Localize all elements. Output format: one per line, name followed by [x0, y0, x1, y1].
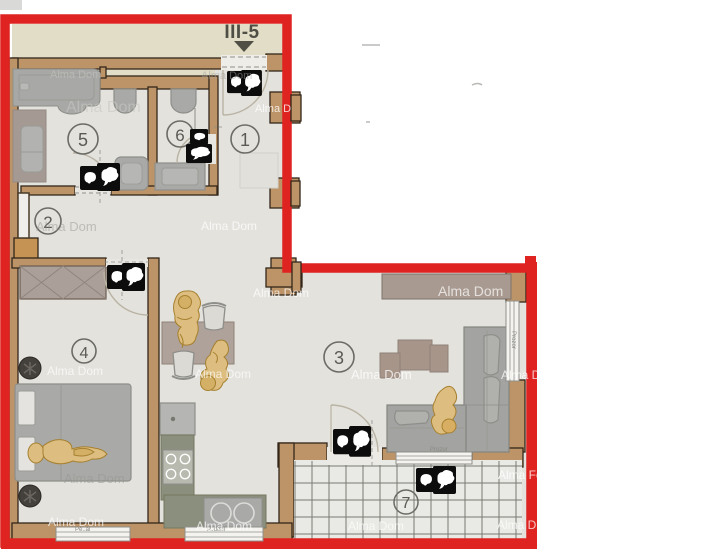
- svg-text:5: 5: [78, 130, 88, 150]
- svg-text:Alma Dom: Alma Dom: [196, 519, 252, 533]
- svg-text:Alma Dom: Alma Dom: [66, 99, 141, 116]
- svg-text:Prozor: Prozor: [510, 331, 516, 349]
- svg-text:Alma Dom: Alma Dom: [36, 219, 97, 234]
- svg-text:Alma Dom: Alma Dom: [47, 364, 103, 378]
- svg-text:6: 6: [175, 126, 184, 145]
- svg-text:Alma Dom: Alma Dom: [48, 515, 104, 529]
- svg-text:Alma Dom: Alma Dom: [195, 367, 251, 381]
- svg-text:Alma D: Alma D: [497, 518, 537, 532]
- svg-text:Alma Dom: Alma Dom: [438, 283, 503, 299]
- svg-text:Alma Fo: Alma Fo: [498, 468, 543, 482]
- svg-text:III-5: III-5: [224, 22, 259, 43]
- svg-text:Alma Dom: Alma Dom: [351, 367, 412, 382]
- svg-text:4: 4: [80, 345, 89, 362]
- svg-text:Alma Dom: Alma Dom: [253, 286, 309, 300]
- svg-text:Alma D: Alma D: [501, 368, 541, 382]
- svg-text:Alma D: Alma D: [255, 103, 291, 115]
- svg-text:Prozor: Prozor: [430, 447, 448, 453]
- svg-text:Alma Dom: Alma Dom: [201, 70, 252, 82]
- svg-text:Alma Dom: Alma Dom: [348, 519, 404, 533]
- svg-text:Alma Dom: Alma Dom: [201, 219, 257, 233]
- svg-text:Alma Dom: Alma Dom: [64, 471, 125, 486]
- svg-text:Alma Dom: Alma Dom: [50, 69, 101, 81]
- svg-text:7: 7: [402, 495, 411, 512]
- svg-text:3: 3: [334, 348, 344, 368]
- svg-text:1: 1: [240, 130, 250, 150]
